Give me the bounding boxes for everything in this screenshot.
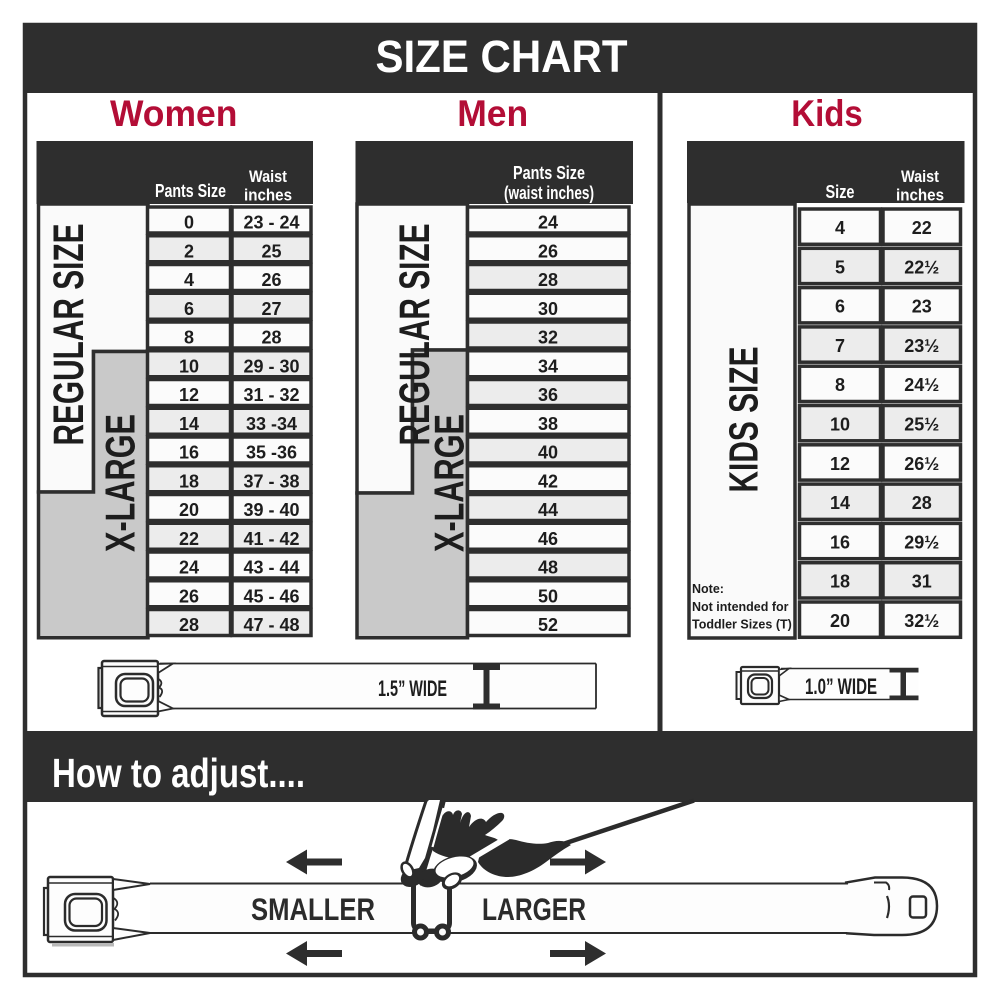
svg-text:20: 20	[179, 500, 199, 520]
svg-text:inches: inches	[244, 186, 292, 205]
svg-text:44: 44	[538, 500, 558, 520]
svg-text:How to adjust....: How to adjust....	[52, 750, 305, 796]
svg-text:28: 28	[179, 615, 199, 635]
svg-text:32½: 32½	[904, 611, 939, 631]
svg-text:2: 2	[184, 241, 194, 261]
svg-text:28: 28	[912, 493, 932, 513]
svg-text:18: 18	[830, 572, 850, 592]
svg-text:36: 36	[538, 385, 558, 405]
svg-text:16: 16	[830, 532, 850, 552]
svg-text:40: 40	[538, 443, 558, 463]
svg-text:inches: inches	[896, 186, 944, 205]
svg-text:REGULAR SIZE: REGULAR SIZE	[45, 224, 93, 446]
svg-text:Size: Size	[826, 181, 855, 202]
svg-text:7: 7	[835, 336, 845, 356]
svg-text:6: 6	[184, 299, 194, 319]
svg-text:Not intended for: Not intended for	[692, 600, 789, 614]
svg-text:Kids: Kids	[791, 93, 863, 134]
svg-text:(waist inches): (waist inches)	[504, 182, 594, 203]
svg-text:50: 50	[538, 586, 558, 606]
svg-text:Pants Size: Pants Size	[513, 162, 585, 183]
svg-text:18: 18	[179, 471, 199, 491]
svg-text:X-LARGE: X-LARGE	[97, 414, 144, 552]
svg-text:8: 8	[184, 328, 194, 348]
svg-text:29 - 30: 29 - 30	[243, 356, 299, 376]
svg-text:22½: 22½	[904, 257, 939, 277]
svg-text:12: 12	[179, 385, 199, 405]
svg-text:4: 4	[835, 218, 845, 238]
svg-text:Men: Men	[457, 93, 528, 134]
svg-text:28: 28	[538, 270, 558, 290]
svg-text:8: 8	[835, 375, 845, 395]
svg-text:47 - 48: 47 - 48	[243, 615, 299, 635]
svg-text:22: 22	[179, 529, 199, 549]
svg-text:SMALLER: SMALLER	[251, 891, 375, 927]
svg-text:34: 34	[538, 356, 558, 376]
svg-text:25½: 25½	[904, 415, 939, 435]
svg-text:45 - 46: 45 - 46	[243, 586, 299, 606]
svg-text:27: 27	[261, 299, 281, 319]
svg-text:24: 24	[538, 213, 558, 233]
svg-text:39 - 40: 39 - 40	[243, 500, 299, 520]
svg-text:32: 32	[538, 328, 558, 348]
svg-text:KIDS SIZE: KIDS SIZE	[721, 347, 767, 493]
svg-text:20: 20	[830, 611, 850, 631]
svg-text:6: 6	[835, 297, 845, 317]
svg-text:48: 48	[538, 558, 558, 578]
svg-text:1.5” WIDE: 1.5” WIDE	[378, 676, 447, 701]
svg-text:31: 31	[912, 572, 932, 592]
svg-text:29½: 29½	[904, 532, 939, 552]
svg-text:33 -34: 33 -34	[246, 414, 297, 434]
svg-text:25: 25	[261, 241, 281, 261]
svg-text:16: 16	[179, 443, 199, 463]
svg-text:Note:: Note:	[692, 582, 724, 596]
svg-text:23 - 24: 23 - 24	[243, 213, 299, 233]
svg-text:X-LARGE: X-LARGE	[426, 414, 473, 552]
svg-text:10: 10	[179, 356, 199, 376]
svg-text:1.0” WIDE: 1.0” WIDE	[805, 674, 877, 699]
svg-text:31 - 32: 31 - 32	[243, 385, 299, 405]
svg-text:SIZE CHART: SIZE CHART	[376, 31, 628, 82]
svg-text:42: 42	[538, 471, 558, 491]
svg-text:14: 14	[830, 493, 850, 513]
svg-text:24: 24	[179, 558, 199, 578]
svg-text:46: 46	[538, 529, 558, 549]
svg-text:4: 4	[184, 270, 194, 290]
svg-text:30: 30	[538, 299, 558, 319]
svg-text:35 -36: 35 -36	[246, 443, 297, 463]
svg-text:14: 14	[179, 414, 199, 434]
svg-text:26½: 26½	[904, 454, 939, 474]
svg-text:Women: Women	[110, 93, 238, 134]
svg-text:5: 5	[835, 257, 845, 277]
svg-text:22: 22	[912, 218, 932, 238]
svg-text:23: 23	[912, 297, 932, 317]
svg-text:28: 28	[261, 328, 281, 348]
svg-text:52: 52	[538, 615, 558, 635]
svg-text:23½: 23½	[904, 336, 939, 356]
svg-text:37 - 38: 37 - 38	[243, 471, 299, 491]
svg-text:LARGER: LARGER	[482, 891, 586, 927]
svg-text:26: 26	[179, 586, 199, 606]
svg-text:38: 38	[538, 414, 558, 434]
svg-text:0: 0	[184, 213, 194, 233]
svg-text:26: 26	[538, 241, 558, 261]
svg-text:12: 12	[830, 454, 850, 474]
svg-text:10: 10	[830, 415, 850, 435]
svg-text:43 - 44: 43 - 44	[243, 558, 299, 578]
svg-text:Toddler Sizes (T): Toddler Sizes (T)	[692, 618, 792, 632]
svg-text:REGULAR SIZE: REGULAR SIZE	[391, 224, 439, 446]
svg-text:41 - 42: 41 - 42	[243, 529, 299, 549]
svg-text:Waist: Waist	[249, 167, 287, 186]
svg-text:Pants Size: Pants Size	[155, 180, 226, 201]
svg-text:Waist: Waist	[901, 167, 939, 186]
svg-text:24½: 24½	[904, 375, 939, 395]
svg-text:26: 26	[261, 270, 281, 290]
